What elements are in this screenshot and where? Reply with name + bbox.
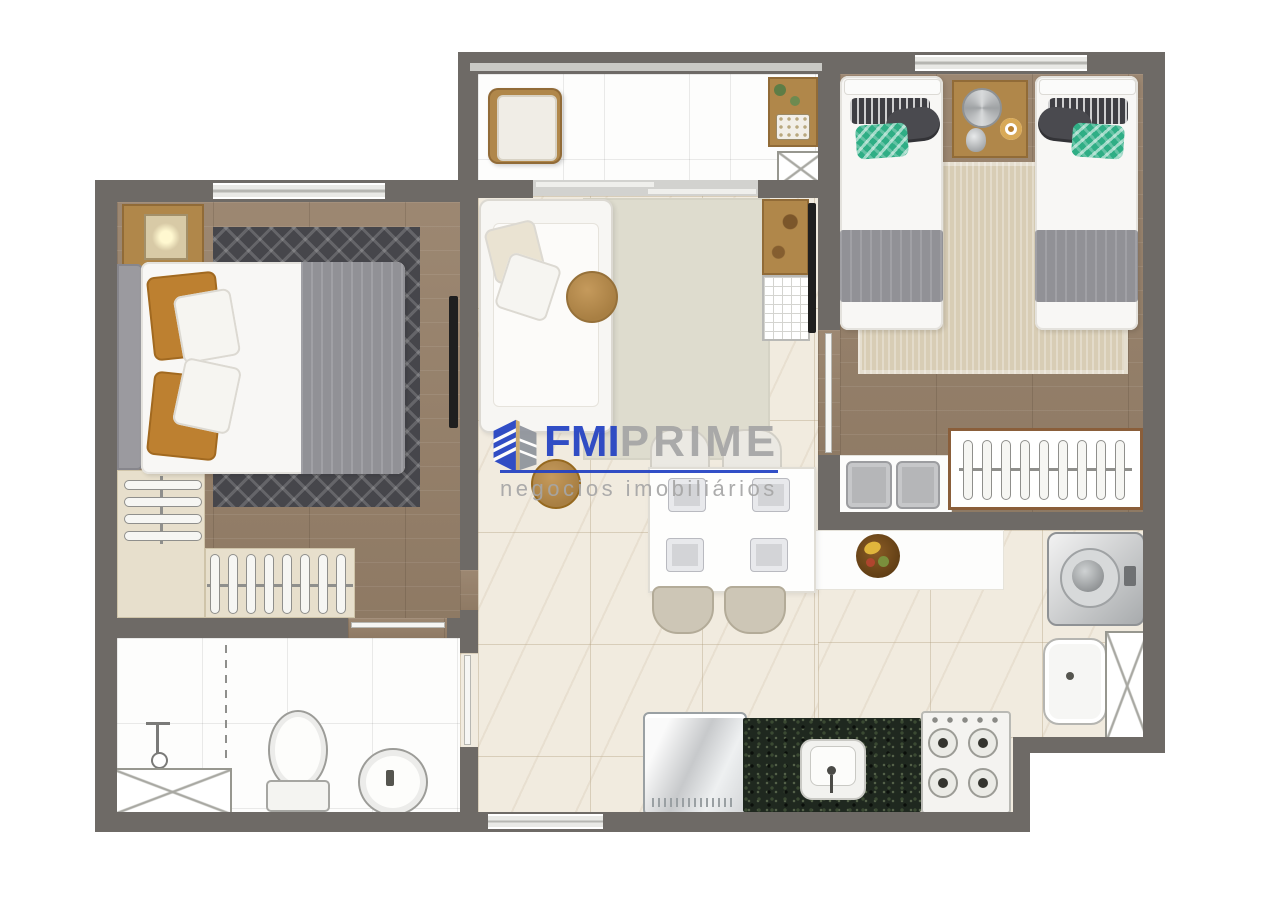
stove-burner	[928, 728, 958, 758]
wall-balcony-left	[458, 52, 478, 202]
bedroom1-lamp	[144, 214, 188, 260]
hanger-clothes	[963, 440, 973, 500]
sliding-door-panel	[648, 189, 756, 194]
hanger-clothes	[228, 554, 238, 614]
hanger-clothes	[1077, 440, 1087, 500]
fruit-icon	[878, 556, 889, 567]
nightstand-tray	[962, 88, 1002, 128]
hanger-clothes	[264, 554, 274, 614]
side-table-round	[566, 271, 618, 323]
fruit-icon	[866, 558, 875, 567]
washing-machine-drum-inner	[1072, 560, 1104, 592]
place-setting	[666, 538, 704, 572]
wall-left	[95, 180, 117, 832]
water-heater-dot	[1066, 672, 1074, 680]
nightstand-kettle	[966, 128, 986, 152]
kitchen-window	[488, 814, 603, 829]
garden-tray-icon	[776, 114, 810, 140]
stove-burner	[928, 768, 958, 798]
nightstand-dish	[1000, 118, 1022, 140]
balcony-railing	[470, 63, 822, 71]
shower-tray	[112, 768, 232, 816]
bedroom1-tv	[449, 296, 458, 428]
brand-secondary: PRIME	[620, 417, 779, 466]
bedroom2-door-leaf	[826, 334, 831, 452]
place-setting	[750, 538, 788, 572]
bedroom1-opening-threshold	[460, 570, 478, 612]
hanger-clothes	[246, 554, 256, 614]
wall-service-bottom	[1013, 737, 1165, 753]
wall-right	[1143, 52, 1165, 753]
wall-bathroom-top-right	[447, 618, 460, 638]
bed-blanket	[1035, 230, 1138, 302]
hanger-clothes	[124, 514, 202, 524]
wall-bathroom-right	[460, 747, 478, 812]
hanger-clothes	[318, 554, 328, 614]
living-tv	[808, 203, 816, 333]
sink-faucet-icon	[827, 766, 836, 775]
sliding-door-panel	[536, 182, 654, 187]
wall-bathroom-top-left	[95, 618, 348, 638]
water-heater	[1043, 638, 1107, 725]
shower-head-icon	[151, 752, 168, 769]
wall-bedroom1-living-upper	[460, 202, 478, 570]
dining-chair-bottom	[724, 586, 786, 634]
kitchen-counter	[812, 530, 1004, 590]
stove-burner	[968, 768, 998, 798]
hanger-clothes	[124, 531, 202, 541]
hanger-clothes	[336, 554, 346, 614]
fmi-prime-logo-icon	[490, 416, 540, 472]
wall-bedroom2-bottom	[818, 512, 1165, 530]
fruit-bowl	[856, 534, 900, 578]
watermark: FMIPRIME negocios imobiliários	[490, 412, 800, 510]
hanger-clothes	[282, 554, 292, 614]
bedroom1-bed-blanket	[301, 262, 405, 474]
tv-rack-wood	[762, 199, 809, 275]
hanger-clothes	[1039, 440, 1049, 500]
plant-icon	[790, 96, 800, 106]
toilet-bowl	[268, 710, 328, 790]
bed-blanket	[840, 230, 943, 302]
brand-name: FMIPRIME	[544, 414, 779, 470]
balcony-armchair-cushion	[497, 95, 557, 161]
sink-faucet-icon	[386, 770, 394, 786]
bedroom2-wardrobe	[948, 428, 1143, 510]
washing-machine-panel	[1124, 566, 1136, 586]
stove	[921, 711, 1011, 814]
bed-green-pillow	[855, 122, 909, 160]
bedroom1-pillow-white-top	[173, 287, 242, 364]
tv-rack-shelf	[762, 275, 810, 341]
wall-bedroom1-living-lower	[460, 610, 478, 653]
toilet-tank	[266, 780, 330, 812]
bedroom1-door-threshold	[348, 618, 447, 638]
apartment-floor-plan: FMIPRIME negocios imobiliários	[0, 0, 1280, 920]
wall-glass-stub-left	[478, 180, 533, 198]
hanger-clothes	[300, 554, 310, 614]
hanger-clothes	[1020, 440, 1030, 500]
stove-knobs	[928, 716, 1000, 724]
wall-glass-stub-right	[758, 180, 818, 198]
bed-headboard-bar	[844, 79, 941, 95]
hanger-clothes	[982, 440, 992, 500]
hanger-clothes	[1001, 440, 1011, 500]
bed-green-pillow	[1071, 122, 1125, 160]
bed-headboard-bar	[1039, 79, 1136, 95]
bedroom1-door-leaf	[352, 623, 444, 627]
wall-living-bedroom2-lower	[818, 455, 840, 518]
shower-pipe	[156, 722, 159, 756]
bedroom1-window	[213, 183, 385, 199]
bathroom-door-leaf	[465, 656, 470, 744]
hanger-clothes	[1096, 440, 1106, 500]
shower-glass-partition	[225, 645, 227, 763]
plant-icon	[774, 84, 786, 96]
hanger-clothes	[210, 554, 220, 614]
stove-burner	[968, 728, 998, 758]
dining-chair-bottom	[652, 586, 714, 634]
refrigerator-vent	[652, 798, 734, 807]
brand-underline	[500, 470, 778, 473]
brand-primary: FMI	[544, 417, 620, 466]
hanger-clothes	[124, 497, 202, 507]
wall-living-bedroom2-upper	[818, 52, 840, 330]
brand-tagline: negocios imobiliários	[500, 476, 778, 502]
bedroom2-window	[915, 55, 1087, 71]
hanger-clothes	[1115, 440, 1125, 500]
sink-faucet-spout	[830, 775, 833, 793]
hanger-clothes	[1058, 440, 1068, 500]
hanger-clothes	[124, 480, 202, 490]
wall-service-step	[1013, 737, 1030, 832]
pouf	[846, 461, 892, 509]
bedroom1-bed-headboard	[117, 264, 143, 470]
pouf	[896, 461, 940, 509]
